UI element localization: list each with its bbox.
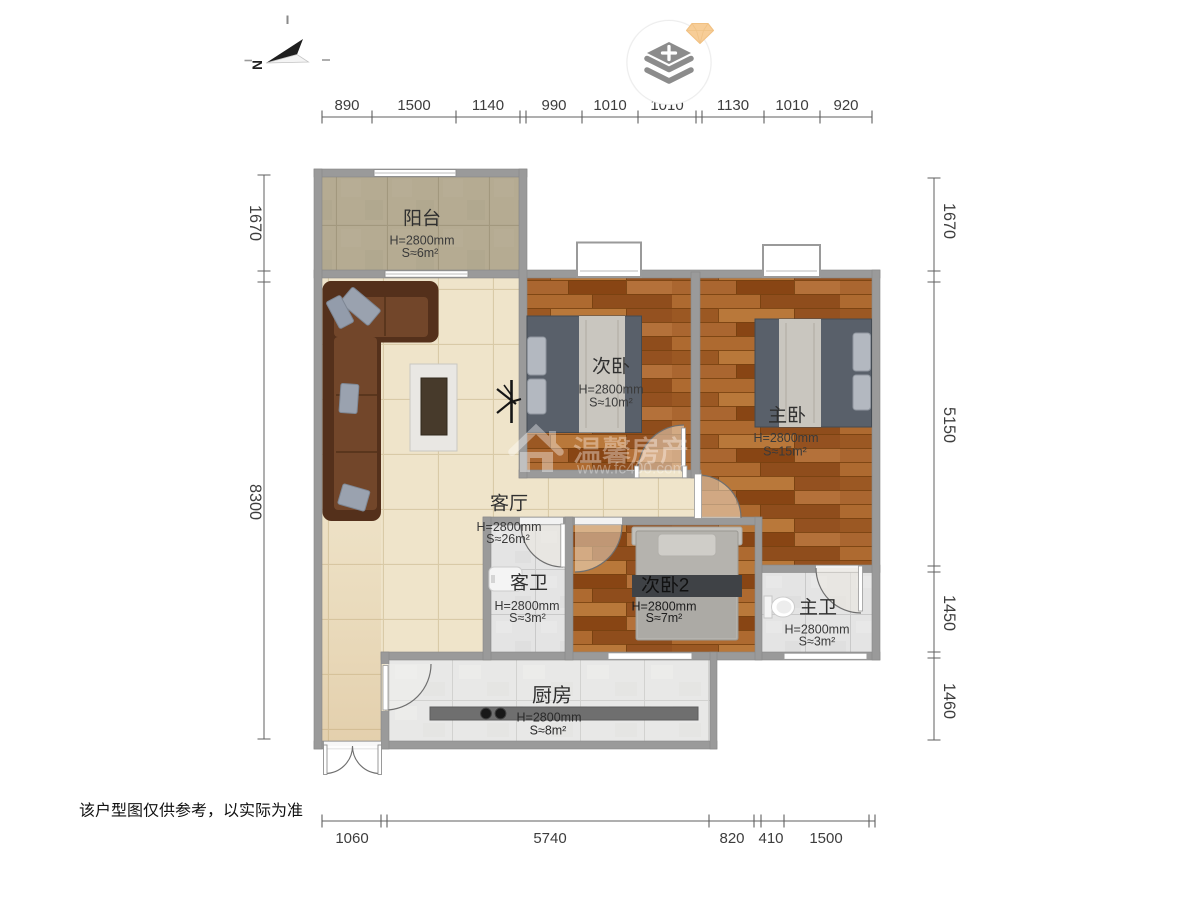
svg-text:1140: 1140 [472, 97, 504, 114]
svg-text:990: 990 [541, 97, 566, 114]
svg-text:1130: 1130 [717, 97, 749, 114]
svg-text:S≈3m²: S≈3m² [509, 611, 546, 625]
svg-text:5150: 5150 [940, 407, 958, 443]
svg-text:1670: 1670 [246, 205, 264, 241]
svg-text:1500: 1500 [809, 830, 842, 847]
svg-text:S≈26m²: S≈26m² [486, 532, 530, 546]
svg-text:S≈10m²: S≈10m² [589, 396, 633, 410]
svg-text:S≈7m²: S≈7m² [646, 611, 683, 625]
svg-text:S≈15m²: S≈15m² [763, 445, 807, 459]
svg-text:1010: 1010 [593, 97, 626, 114]
svg-text:920: 920 [833, 97, 858, 114]
svg-text:www.fc400.com: www.fc400.com [576, 461, 686, 478]
svg-text:1670: 1670 [940, 203, 958, 239]
svg-text:410: 410 [758, 830, 783, 847]
svg-text:820: 820 [719, 830, 744, 847]
svg-text:2: 2 [679, 576, 690, 597]
svg-text:H=2800mm: H=2800mm [754, 431, 819, 445]
svg-text:S≈6m²: S≈6m² [402, 246, 439, 260]
svg-text:S≈8m²: S≈8m² [530, 724, 567, 738]
svg-text:1450: 1450 [940, 595, 958, 631]
svg-text:1500: 1500 [397, 97, 430, 114]
svg-text:N: N [250, 60, 265, 70]
svg-text:890: 890 [334, 97, 359, 114]
svg-text:1060: 1060 [335, 830, 368, 847]
svg-text:5740: 5740 [533, 830, 566, 847]
svg-text:H=2800mm: H=2800mm [517, 711, 582, 725]
svg-text:H=2800mm: H=2800mm [579, 383, 644, 397]
svg-text:1460: 1460 [940, 683, 958, 719]
svg-text:1010: 1010 [775, 97, 808, 114]
svg-text:S≈3m²: S≈3m² [799, 635, 836, 649]
svg-text:8300: 8300 [246, 484, 264, 520]
